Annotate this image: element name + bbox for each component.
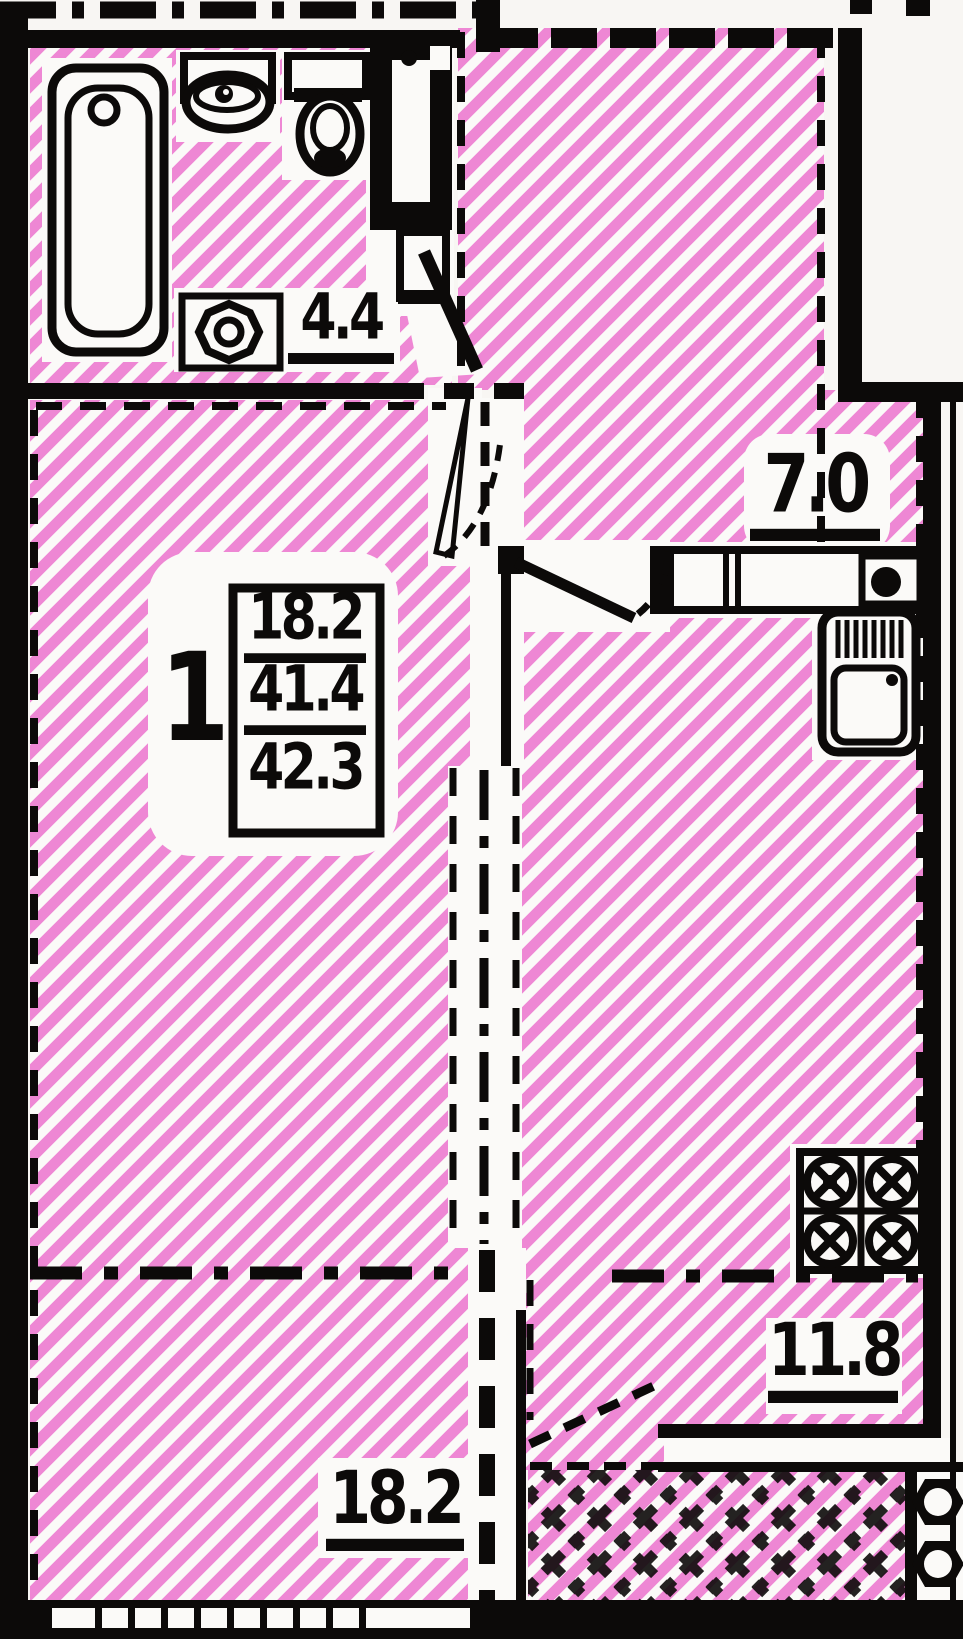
hall-area-label: 11.8 [768, 1314, 898, 1403]
washing-machine-icon [182, 296, 280, 368]
living-room-area-label: 18.2 [326, 1462, 464, 1551]
fridge-icon [822, 612, 916, 752]
shaft-bottom-wall [838, 382, 963, 402]
shaft-left-wall [838, 28, 862, 402]
rooms-count-label: 1 [160, 637, 220, 763]
balcony-floor [528, 1470, 905, 1612]
stove-4-burner-icon [800, 1152, 922, 1270]
window-icon [52, 1608, 470, 1628]
corridor-floor [458, 28, 824, 390]
left-wall [0, 14, 28, 1612]
balcony-side-wall [516, 1310, 526, 1612]
living-area-value: 18.2 [244, 586, 366, 663]
balcony-sill-bottom [658, 1462, 905, 1472]
right-outer-line [950, 385, 956, 1612]
balcony-sill-top [658, 1424, 941, 1438]
bathtub-icon [52, 68, 164, 352]
total-area-value: 42.3 [244, 736, 366, 803]
kitchen-area-label: 7.0 [750, 445, 880, 541]
bathroom-bottom-wall [0, 383, 394, 399]
floor-plan: 4.4 7.0 11.8 18.2 1 18.2 41.4 42.3 [0, 0, 963, 1639]
vent-panel-border [905, 1462, 917, 1612]
kitchen-counter-icon [654, 550, 925, 610]
kitchen-sink-icon [862, 556, 920, 604]
bathroom-area-label: 4.4 [288, 286, 394, 364]
wash-basin-icon [184, 56, 272, 129]
apartment-area-value: 41.4 [244, 658, 366, 735]
